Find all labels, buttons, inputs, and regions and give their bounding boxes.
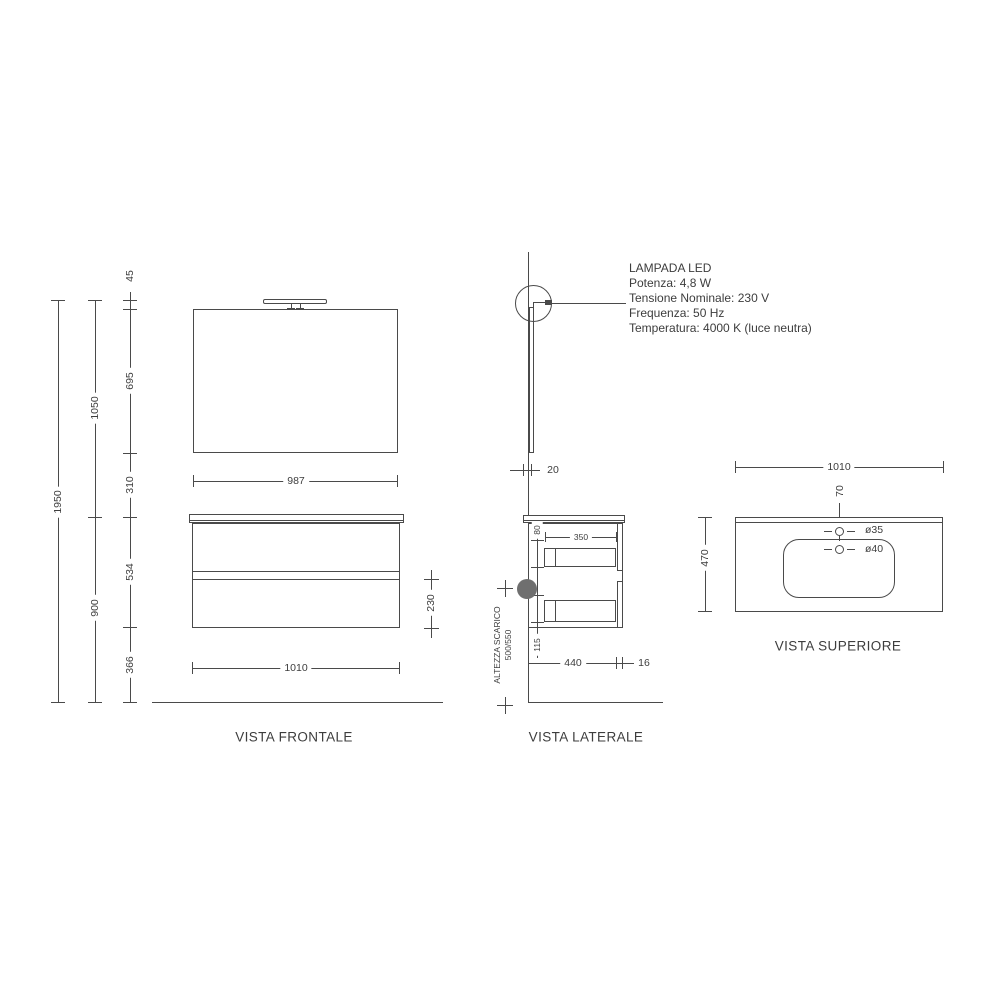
dim-top-width-value: 1010 [823,461,854,474]
dim-zones-line [95,300,96,703]
side-lower-drawer-wall [555,600,556,622]
lamp-spec-power: Potenza: 4,8 W [629,276,812,291]
dim-mirror-thickness-line [510,470,540,471]
lamp-callout-circle [515,285,552,322]
dim-top-depth-value: 470 [699,545,712,571]
front-lamp-bracket-foot [287,308,295,309]
dim-tick [424,579,439,580]
dim-depth-value: 440 [560,657,586,670]
dim-tick [88,702,102,703]
front-drawer-gap-upper-line [192,571,400,572]
lamp-callout-leader-line [551,303,626,304]
front-cabinet-outline [192,523,400,628]
drain-hole-crosshair [847,549,855,550]
dim-lower-zone-value: 900 [89,595,102,621]
dim-tick [123,309,137,310]
side-front-panel-cap [617,570,623,571]
drain-height-note: ALTEZZA SCARICO 500/550 [491,602,515,687]
front-counter-top [189,514,404,523]
dim-tick [735,461,736,473]
front-lamp-bar [263,299,327,304]
front-lamp-bracket-foot [296,308,304,309]
dim-tick [531,464,532,476]
dim-gap-height-value: 310 [124,472,137,498]
drain-height-note-line2: 500/550 [503,630,513,661]
tap-hole-diameter-label: ø35 [861,524,887,537]
front-counter-edge-line [190,520,403,521]
dim-drawer-depth-value: 350 [570,532,592,543]
dim-tick [616,657,617,669]
dim-tick [531,622,544,623]
dim-tick [123,517,137,518]
drain-dim-tick-cross [497,588,513,589]
dim-bottom-clearance-value: 115 [532,634,543,656]
side-front-panel-cap [617,581,623,582]
dim-mirror-width-value: 987 [283,475,309,488]
dim-tick [531,540,544,541]
dim-lamp-height-value: 45 [124,266,137,286]
side-mirror-profile [529,307,534,453]
drain-hole-diameter-label: ø40 [861,543,887,556]
dim-tick [123,453,137,454]
dim-tick [399,662,400,674]
dim-tick [51,702,65,703]
dim-upper-zone-value: 1050 [89,392,102,423]
tap-hole-crosshair [824,531,832,532]
side-floor-line [528,702,663,703]
dim-tick [528,657,529,669]
drain-hole-crosshair [824,549,832,550]
dim-tick [523,464,524,476]
dim-tick [397,475,398,487]
tap-hole-circle [835,527,844,536]
side-front-panel-lower [617,581,618,627]
technical-drawing-canvas: 1950 1050 900 45 695 310 534 366 987 101… [0,0,1000,1000]
dim-tap-offset-value: 70 [834,481,847,501]
lamp-spec-voltage: Tensione Nominale: 230 V [629,291,812,306]
dim-tick [88,517,102,518]
drain-dot [517,579,537,599]
dim-cabinet-height-value: 534 [124,559,137,585]
dim-total-height-value: 1950 [52,486,65,517]
top-counter-back-edge [736,522,942,523]
dim-tick [622,657,623,669]
dim-drawer-height-value: 230 [425,590,438,616]
dim-tick [531,567,544,568]
dim-mirror-height-value: 695 [124,368,137,394]
dim-tick [88,300,102,301]
tap-hole-crosshair [839,536,840,541]
side-front-panel-upper [617,524,618,570]
drain-height-note-line1: ALTEZZA SCARICO [492,606,502,683]
dim-mirror-thickness-value: 20 [543,464,563,477]
dim-tick [192,662,193,674]
top-view-label: VISTA SUPERIORE [775,639,902,654]
drain-dim-tick-cross [497,705,513,706]
drain-hole-circle [835,545,844,554]
lamp-spec-title: LAMPADA LED [629,261,812,276]
dim-floor-clearance-value: 366 [124,652,137,678]
dim-tick [193,475,194,487]
dim-tick [123,702,137,703]
dim-tick [123,300,137,301]
side-view-label: VISTA LATERALE [529,730,644,745]
dim-tick [943,461,944,473]
dim-tick [698,611,712,612]
dim-tick [424,628,439,629]
dim-top-clearance-value: 80 [532,521,543,538]
lamp-spec-temperature: Temperatura: 4000 K (luce neutra) [629,321,812,336]
dim-tick [616,532,617,542]
dim-tick [545,532,546,542]
lamp-spec-frequency: Frequenza: 50 Hz [629,306,812,321]
dim-tick [123,627,137,628]
side-upper-drawer-wall [555,548,556,567]
tap-hole-crosshair [847,531,855,532]
front-floor-line [152,702,443,703]
front-mirror-outline [193,309,398,453]
dim-tick [698,517,712,518]
dim-cabinet-width-value: 1010 [280,662,311,675]
front-drawer-gap-lower-line [192,579,400,580]
front-view-label: VISTA FRONTALE [235,730,353,745]
dim-tick [51,300,65,301]
dim-front-thickness-value: 16 [634,657,654,670]
lamp-spec-block: LAMPADA LED Potenza: 4,8 W Tensione Nomi… [629,261,812,336]
